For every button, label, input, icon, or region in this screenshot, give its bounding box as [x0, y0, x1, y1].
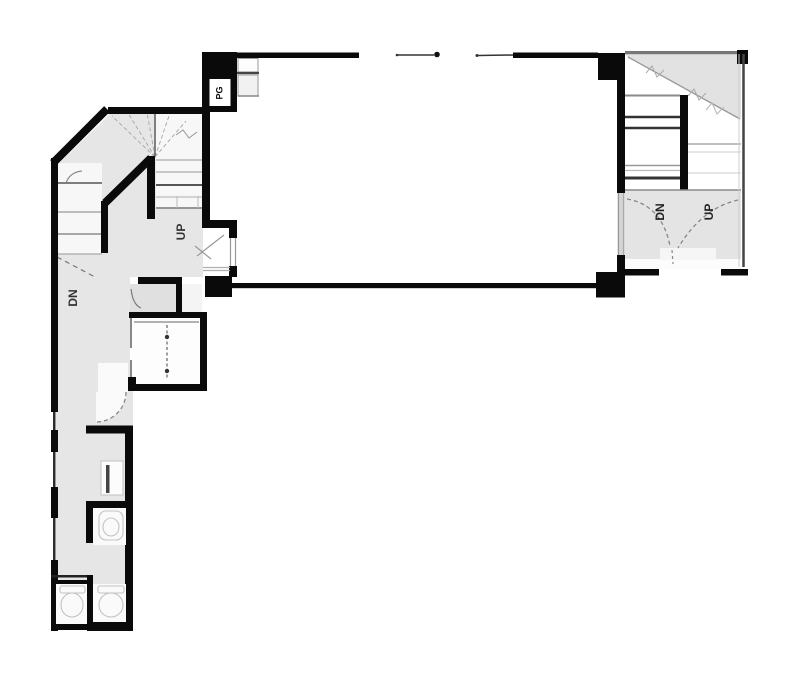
svg-text:PG: PG: [214, 86, 224, 99]
svg-text:DN: DN: [653, 203, 667, 220]
svg-text:UP: UP: [702, 204, 716, 221]
svg-text:DN: DN: [66, 289, 80, 306]
svg-text:UP: UP: [174, 224, 188, 241]
